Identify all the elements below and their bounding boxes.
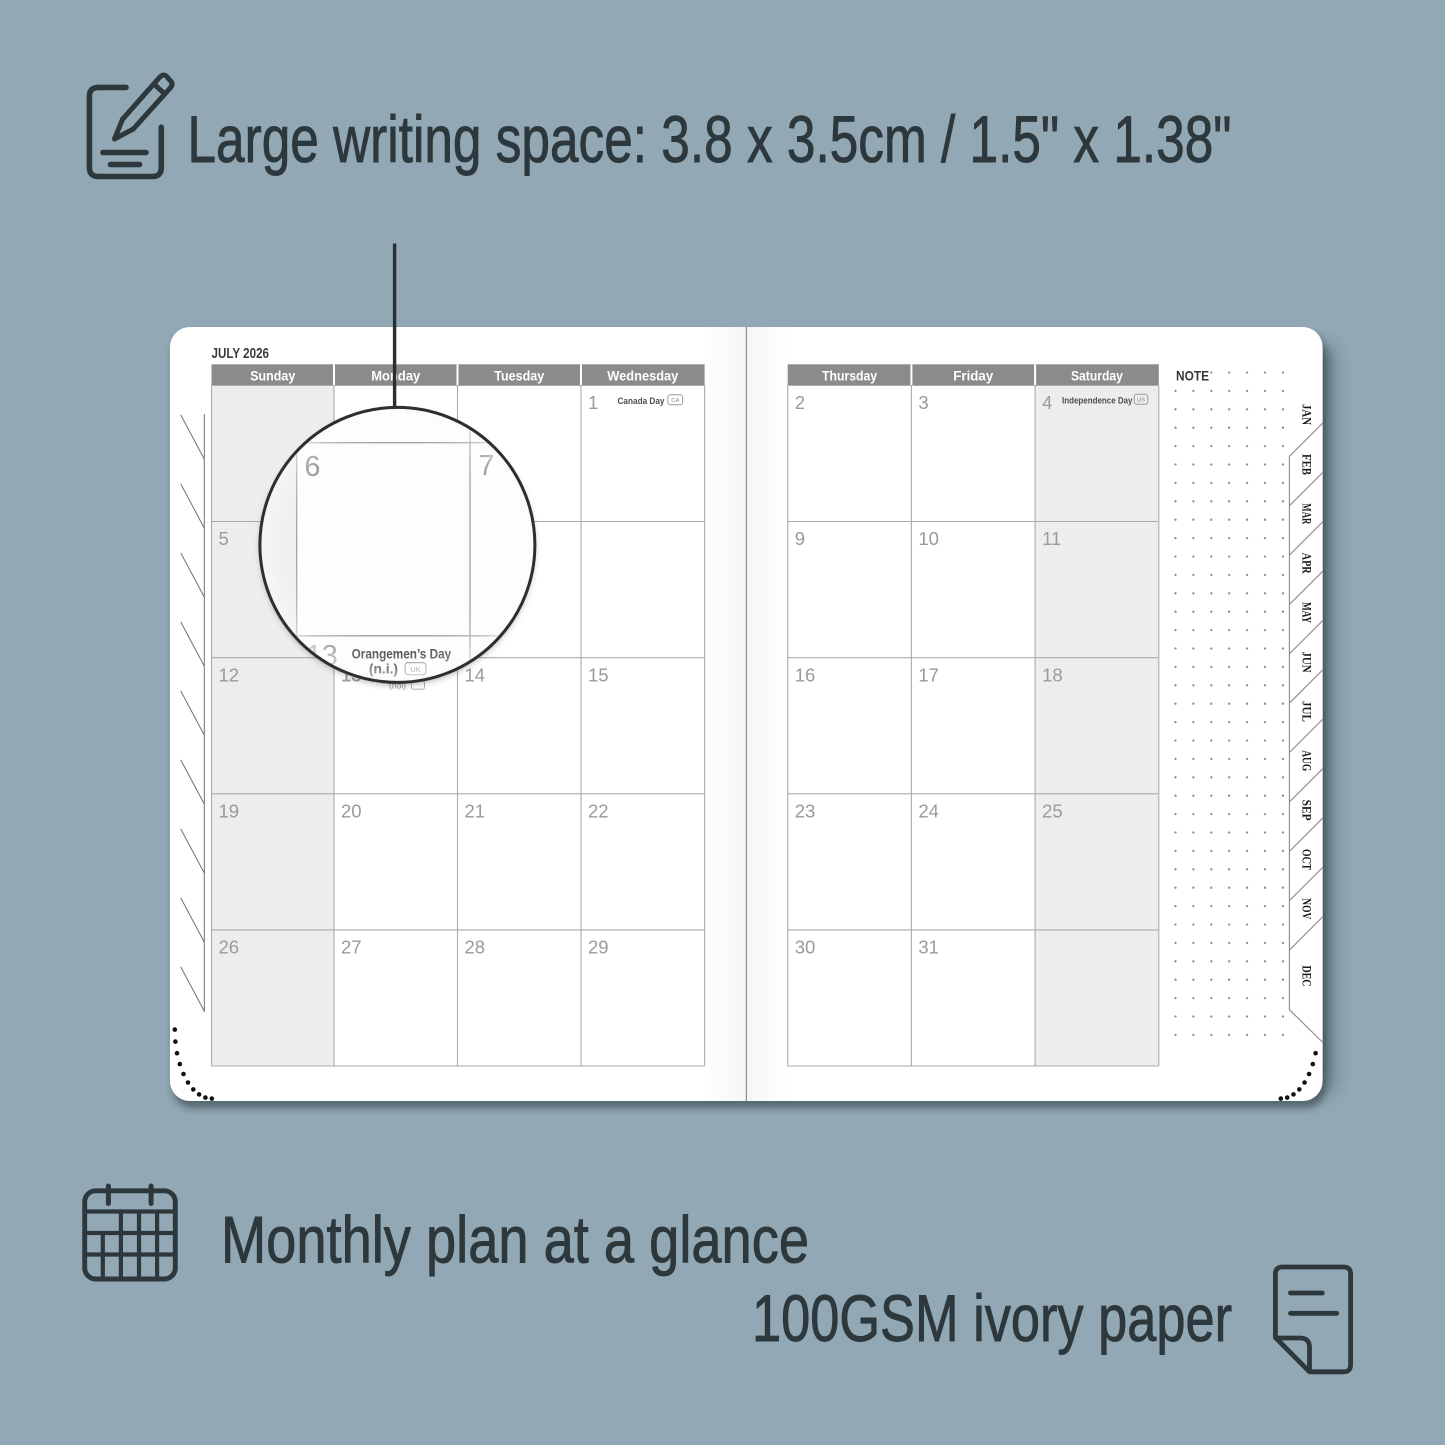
svg-text:Canada Day: Canada Day bbox=[618, 396, 666, 406]
svg-text:MAR: MAR bbox=[1299, 503, 1313, 525]
svg-text:US: US bbox=[1137, 398, 1145, 404]
svg-text:100GSM ivory paper: 100GSM ivory paper bbox=[752, 1281, 1232, 1355]
svg-text:APR: APR bbox=[1299, 553, 1313, 575]
svg-text:18: 18 bbox=[1042, 664, 1063, 685]
svg-text:FEB: FEB bbox=[1299, 454, 1313, 475]
svg-text:3: 3 bbox=[918, 392, 928, 413]
svg-text:19: 19 bbox=[219, 800, 240, 821]
svg-text:JUL: JUL bbox=[1299, 701, 1313, 722]
svg-text:20: 20 bbox=[341, 800, 362, 821]
svg-text:14: 14 bbox=[465, 664, 486, 685]
svg-text:12: 12 bbox=[219, 664, 240, 685]
svg-text:MAY: MAY bbox=[1299, 602, 1313, 623]
svg-text:Large writing space: 3.8 x 3.5: Large writing space: 3.8 x 3.5cm / 1.5" … bbox=[188, 102, 1232, 176]
svg-text:Monthly plan at a glance: Monthly plan at a glance bbox=[221, 1202, 809, 1276]
svg-text:Saturday: Saturday bbox=[1071, 368, 1123, 383]
svg-text:10: 10 bbox=[918, 528, 939, 549]
svg-text:NOV: NOV bbox=[1299, 898, 1313, 919]
svg-text:9: 9 bbox=[795, 528, 805, 549]
svg-text:JULY 2026: JULY 2026 bbox=[212, 346, 270, 362]
svg-text:5: 5 bbox=[219, 528, 229, 549]
svg-text:26: 26 bbox=[219, 937, 240, 958]
svg-text:17: 17 bbox=[918, 664, 939, 685]
svg-text:24: 24 bbox=[918, 800, 939, 821]
svg-text:2: 2 bbox=[795, 392, 805, 413]
svg-text:4: 4 bbox=[1042, 392, 1052, 413]
svg-text:28: 28 bbox=[465, 937, 486, 958]
svg-text:27: 27 bbox=[341, 937, 362, 958]
svg-text:11: 11 bbox=[1042, 528, 1061, 549]
svg-text:Sunday: Sunday bbox=[250, 368, 295, 383]
svg-text:31: 31 bbox=[918, 937, 939, 958]
svg-text:CA: CA bbox=[671, 398, 679, 404]
svg-text:30: 30 bbox=[795, 937, 816, 958]
svg-text:1: 1 bbox=[588, 392, 598, 413]
svg-text:DEC: DEC bbox=[1299, 966, 1313, 987]
svg-text:Friday: Friday bbox=[953, 368, 993, 383]
svg-text:29: 29 bbox=[588, 937, 609, 958]
svg-text:23: 23 bbox=[795, 800, 816, 821]
svg-text:JAN: JAN bbox=[1299, 404, 1313, 425]
svg-text:Wednesday: Wednesday bbox=[607, 368, 678, 383]
svg-text:Independence Day: Independence Day bbox=[1062, 395, 1133, 405]
svg-text:SEP: SEP bbox=[1299, 800, 1313, 821]
svg-text:22: 22 bbox=[588, 800, 609, 821]
svg-text:25: 25 bbox=[1042, 800, 1063, 821]
svg-text:16: 16 bbox=[795, 664, 816, 685]
svg-text:21: 21 bbox=[465, 800, 486, 821]
svg-text:Tuesday: Tuesday bbox=[494, 368, 544, 383]
svg-text:AUG: AUG bbox=[1299, 750, 1313, 771]
svg-text:15: 15 bbox=[588, 664, 609, 685]
svg-text:Thursday: Thursday bbox=[822, 368, 877, 383]
svg-text:JUN: JUN bbox=[1299, 652, 1313, 673]
svg-text:NOTE: NOTE bbox=[1176, 369, 1209, 384]
svg-text:OCT: OCT bbox=[1299, 849, 1313, 871]
